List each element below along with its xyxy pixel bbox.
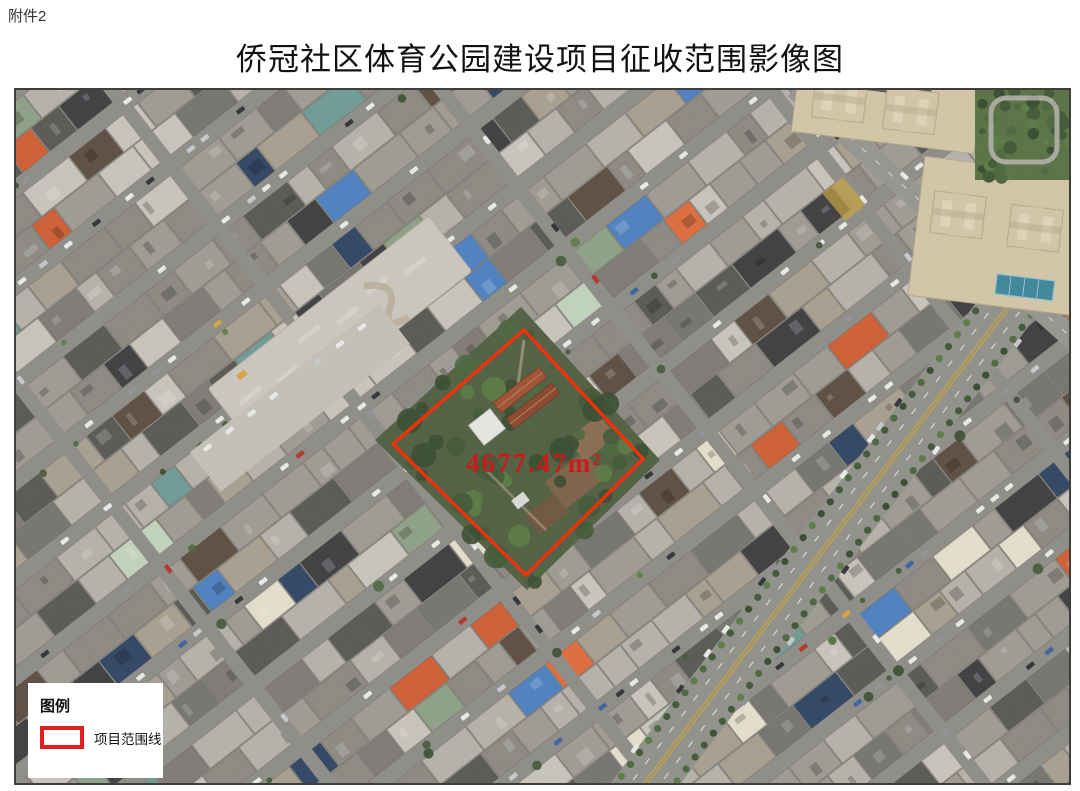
legend-item-label: 项目范围线 — [94, 728, 162, 748]
map-legend: 图例 项目范围线 — [28, 683, 163, 778]
document-page: { "page": { "attachment_label": "附件2", "… — [0, 0, 1080, 791]
boundary-line-swatch — [40, 726, 84, 749]
attachment-label: 附件2 — [8, 5, 46, 26]
area-label: 4677.47m² — [466, 448, 602, 478]
page-title: 侨冠社区体育公园建设项目征收范围影像图 — [0, 34, 1080, 79]
legend-title: 图例 — [40, 695, 163, 716]
legend-item: 项目范围线 — [40, 726, 163, 749]
aerial-map-image: 4677.47m² 图例 项目范围线 — [14, 88, 1071, 785]
aerial-imagery: 4677.47m² — [16, 90, 1069, 783]
